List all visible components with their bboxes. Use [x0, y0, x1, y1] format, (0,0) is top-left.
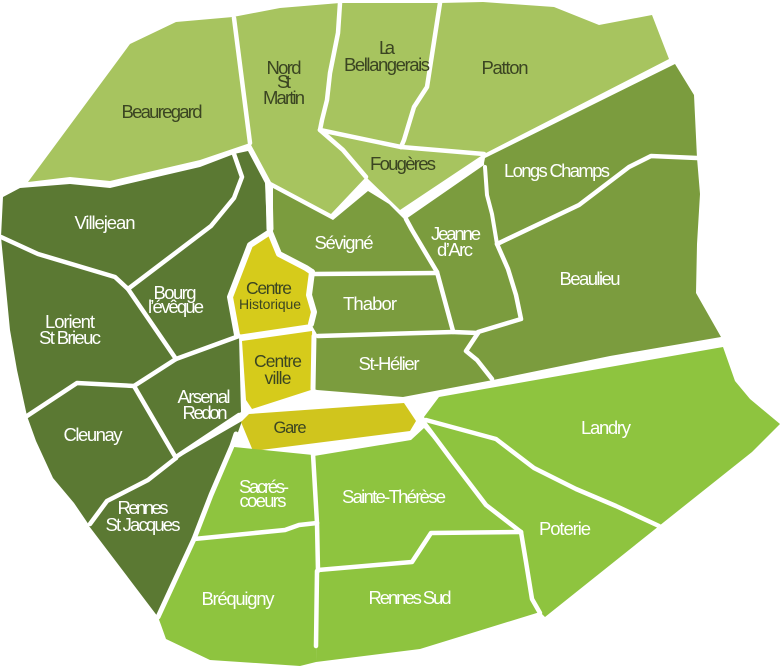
svg-text:Rennes Sud: Rennes Sud	[369, 587, 452, 608]
svg-text:Centre: Centre	[246, 278, 292, 298]
svg-text:Longs Champs: Longs Champs	[504, 160, 610, 181]
svg-text:Beaulieu: Beaulieu	[560, 268, 621, 289]
svg-text:Fougères: Fougères	[370, 153, 436, 174]
svg-text:Sainte-Thérèse: Sainte-Thérèse	[342, 486, 446, 507]
svg-text:Landry: Landry	[581, 417, 632, 438]
svg-text:d’Arc: d’Arc	[437, 239, 473, 260]
svg-text:St-Hélier: St-Hélier	[359, 353, 420, 374]
svg-text:Villejean: Villejean	[75, 212, 136, 233]
svg-text:Beauregard: Beauregard	[122, 101, 203, 122]
svg-text:Redon: Redon	[183, 402, 228, 423]
svg-text:St Brieuc: St Brieuc	[39, 327, 101, 348]
svg-text:Cleunay: Cleunay	[64, 424, 124, 445]
svg-text:Historique: Historique	[239, 296, 301, 312]
svg-text:coeurs: coeurs	[240, 490, 287, 511]
svg-text:St Jacques: St Jacques	[106, 514, 181, 535]
svg-text:Sévigné: Sévigné	[315, 232, 374, 253]
svg-text:ville: ville	[265, 368, 292, 388]
svg-text:Bellangerais: Bellangerais	[344, 54, 430, 75]
svg-text:Bréquigny: Bréquigny	[202, 588, 276, 609]
svg-text:Martin: Martin	[263, 87, 305, 108]
svg-text:l’évêque: l’évêque	[148, 296, 204, 317]
svg-text:Thabor: Thabor	[343, 293, 397, 314]
svg-text:Poterie: Poterie	[539, 518, 591, 539]
svg-text:Patton: Patton	[482, 57, 529, 78]
svg-text:Gare: Gare	[274, 419, 307, 437]
